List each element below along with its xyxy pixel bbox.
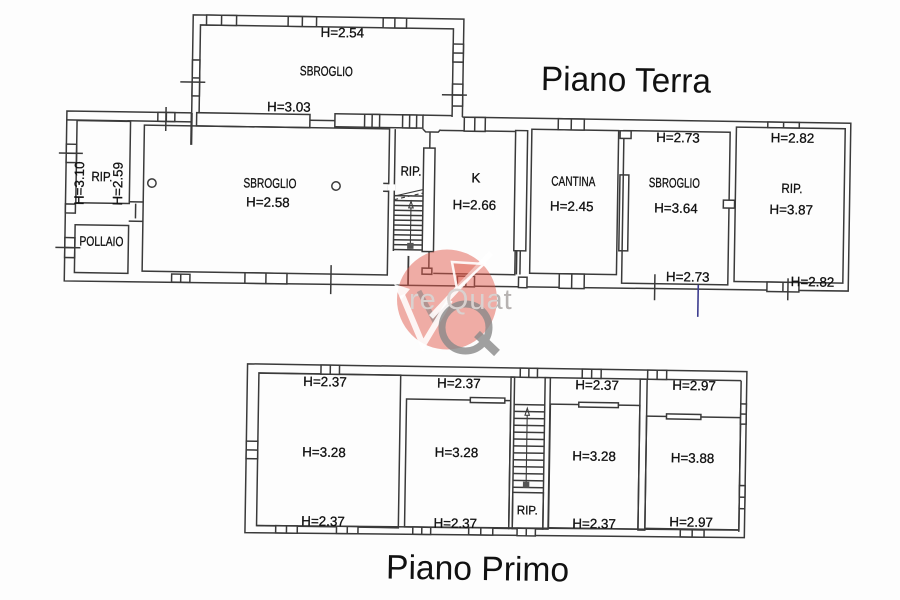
svg-text:SBROGLIO: SBROGLIO [300, 63, 353, 79]
svg-text:H=2.37: H=2.37 [572, 516, 616, 532]
svg-text:H=3.28: H=3.28 [435, 445, 479, 461]
svg-text:RIP.: RIP. [517, 503, 538, 517]
svg-text:H=2.73: H=2.73 [656, 130, 700, 146]
svg-text:RIP.: RIP. [91, 169, 112, 184]
svg-text:SBROGLIO: SBROGLIO [649, 175, 700, 191]
svg-text:H=3.28: H=3.28 [302, 444, 346, 460]
svg-text:H=3.64: H=3.64 [654, 200, 698, 216]
svg-text:H=3.88: H=3.88 [671, 450, 715, 466]
svg-text:H=2.37: H=2.37 [437, 376, 481, 392]
svg-text:K: K [471, 170, 480, 185]
svg-text:POLLAIO: POLLAIO [79, 233, 123, 249]
svg-text:H=2.37: H=2.37 [433, 515, 477, 531]
svg-text:H=3.10: H=3.10 [71, 161, 87, 205]
svg-text:H=2.82: H=2.82 [791, 274, 835, 290]
svg-text:H=2.37: H=2.37 [301, 513, 345, 529]
svg-text:Piano Terra: Piano Terra [541, 60, 712, 101]
svg-text:H=2.66: H=2.66 [452, 197, 496, 213]
svg-text:H=2.37: H=2.37 [575, 377, 619, 393]
svg-text:H=2.82: H=2.82 [771, 130, 815, 146]
svg-text:H=2.97: H=2.97 [672, 378, 716, 394]
svg-text:H=2.73: H=2.73 [666, 269, 710, 285]
svg-text:H=2.58: H=2.58 [246, 194, 290, 210]
svg-text:H=2.54: H=2.54 [320, 25, 364, 41]
svg-text:H=3.03: H=3.03 [267, 99, 311, 115]
svg-text:RIP.: RIP. [781, 181, 802, 196]
svg-text:H=2.97: H=2.97 [669, 514, 713, 530]
svg-text:H=3.87: H=3.87 [769, 202, 813, 218]
svg-text:RIP.: RIP. [400, 164, 421, 179]
svg-text:H=2.45: H=2.45 [550, 198, 594, 214]
svg-text:SBROGLIO: SBROGLIO [243, 175, 296, 191]
svg-text:CANTINA: CANTINA [551, 173, 595, 189]
svg-text:Piano Primo: Piano Primo [386, 549, 570, 590]
svg-text:H=3.28: H=3.28 [572, 448, 616, 464]
svg-text:H=2.37: H=2.37 [303, 374, 347, 390]
